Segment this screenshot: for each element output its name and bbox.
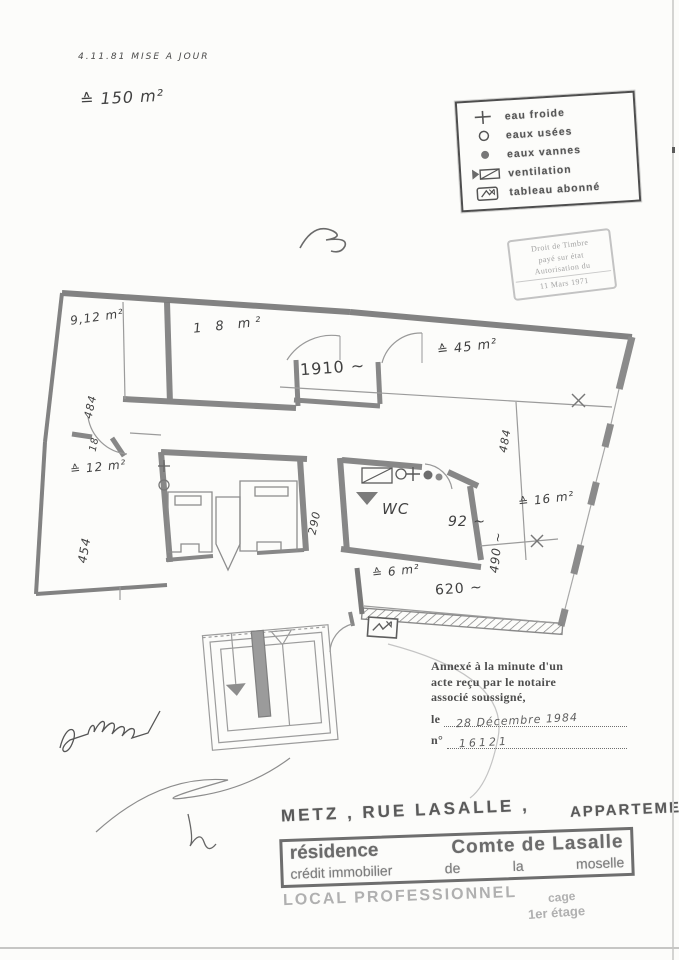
scan-edge-right	[672, 0, 674, 960]
scan-edge-bottom	[0, 947, 679, 949]
signature-1	[60, 711, 160, 752]
dim-620: 620 ~	[435, 579, 484, 598]
notary-line2: acte reçu par le notaire	[431, 675, 627, 691]
ventilation-icon	[471, 166, 502, 183]
notary-date-value: 28 Décembre 1984	[456, 711, 579, 732]
eaux-vannes-symbol	[424, 471, 433, 480]
notary-date-row: le 28 Décembre 1984	[431, 712, 627, 728]
room-label-wc: WC	[382, 500, 409, 518]
tableau-abonne-icon	[472, 184, 503, 202]
signature-2	[96, 758, 290, 832]
signature-3	[188, 814, 216, 849]
lender-name: crédit immobilier	[290, 862, 392, 882]
notary-number-row: n° 16121	[431, 733, 627, 749]
notary-line1: Annexé à la minute d'un	[431, 659, 627, 675]
residence-word: résidence	[289, 840, 378, 865]
scribble-top	[300, 229, 345, 252]
legend-box: eau froide eaux usées eaux vannes ventil…	[455, 91, 641, 213]
eaux-usees-symbol	[396, 469, 406, 479]
scanned-floorplan-page: 4.11.81 MISE A JOUR ≙ 150 m² eau froide …	[0, 0, 679, 960]
scan-speck	[672, 147, 675, 153]
interior-walls	[72, 302, 481, 626]
eaux-usees-icon	[469, 128, 500, 145]
notary-number-value: 16121	[459, 734, 510, 751]
door-arcs	[88, 333, 452, 652]
lobby-funnel	[216, 497, 240, 570]
dim-92: 92 ~	[448, 514, 486, 530]
notary-annotation: Annexé à la minute d'un acte reçu par le…	[431, 659, 627, 749]
update-note: 4.11.81 MISE A JOUR	[78, 52, 210, 62]
eaux-vannes-icon	[470, 147, 501, 164]
droit-de-timbre-stamp: Droit de Timbre payé sur état Autorisati…	[507, 228, 618, 302]
x-marks	[531, 394, 585, 547]
notary-line3: associé soussigné,	[431, 690, 627, 706]
eau-froide-icon	[467, 109, 498, 126]
staircase	[202, 625, 338, 751]
triangle-marker	[356, 492, 378, 505]
tableau-abonne-symbol	[367, 617, 397, 638]
